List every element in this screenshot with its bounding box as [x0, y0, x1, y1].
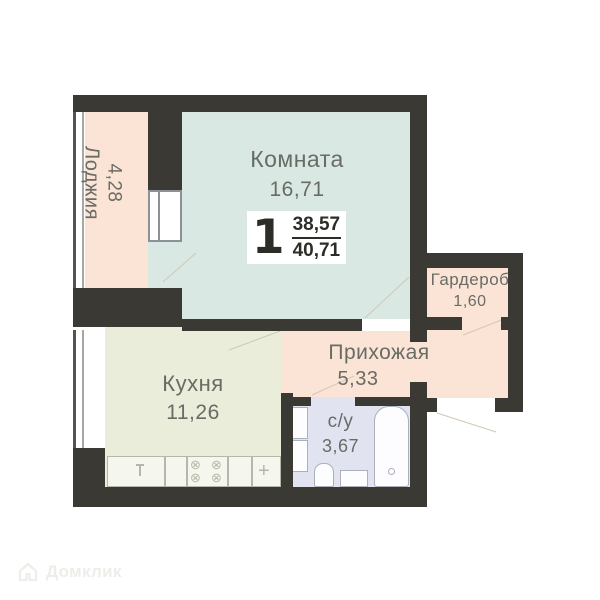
wall [73, 288, 182, 327]
room-area-value: 11,26 [118, 400, 268, 425]
counter-divider [251, 457, 253, 486]
room-area-hallway-value: 5,33 [300, 367, 416, 391]
kitchen-window [73, 330, 76, 448]
room-area-value: 1,60 [420, 292, 520, 311]
room-label-kitchen: Кухня 11,26 [118, 371, 268, 426]
room-area-value: 5,33 [300, 367, 416, 391]
wall [182, 319, 362, 331]
room-area-value: 16,71 [197, 177, 397, 202]
watermark-logo: Домклик [16, 560, 122, 584]
door-swing-line [365, 277, 409, 318]
counter-divider [227, 457, 229, 486]
room-area-value: 3,67 [293, 436, 388, 458]
living-area-value: 38,57 [292, 213, 342, 239]
house-icon [16, 560, 40, 584]
wall [281, 393, 293, 487]
kitchen-window-inner-line [82, 330, 84, 448]
counter-divider [164, 457, 166, 486]
watermark-text: Домклик [46, 562, 122, 582]
faucet-icon [136, 464, 144, 466]
balcony-window [148, 190, 182, 242]
sink-cross-icon: + [258, 460, 270, 483]
sink-icon [340, 470, 368, 487]
room-name: Комната [197, 146, 397, 174]
loggia-window [73, 110, 76, 288]
room-area-value: 4,28 [103, 164, 125, 203]
wall [355, 397, 410, 406]
room-label-wardrobe: Гардероб 1,60 [420, 270, 520, 312]
room-name: с/у [293, 411, 388, 434]
room-name: Кухня [118, 371, 268, 397]
wall [501, 317, 513, 330]
room-label-loggia: Лоджия 4,28 [79, 108, 125, 258]
door-swing-line [463, 319, 504, 335]
door-swing-line [229, 331, 280, 350]
room-name: Лоджия [80, 146, 103, 220]
wall [410, 253, 523, 268]
wall [73, 95, 427, 112]
room-label-hallway: Прихожая [300, 340, 458, 365]
burner-icon: ⊗ [209, 472, 224, 485]
room-label-living: Комната 16,71 [197, 146, 397, 202]
apartment-badge: 1 38,57 40,71 [247, 211, 346, 264]
floor-plan: ⊗ ⊗ ⊗ ⊗ + Лоджия 4,28 [0, 0, 600, 600]
wall [410, 398, 437, 412]
burner-icon: ⊗ [188, 472, 203, 485]
wall [495, 398, 523, 412]
bathtub-drain-icon [388, 468, 395, 475]
room-name: Гардероб [420, 270, 520, 290]
room-name: Прихожая [300, 340, 458, 365]
wall [73, 487, 427, 507]
wall [148, 112, 182, 190]
toilet-icon [314, 463, 334, 487]
total-area-value: 40,71 [293, 239, 341, 263]
door-swing-line [163, 253, 196, 282]
stove-icon: ⊗ ⊗ ⊗ ⊗ [188, 459, 224, 485]
room-label-bathroom: с/у 3,67 [293, 411, 388, 457]
wall [410, 317, 462, 330]
wall [293, 397, 311, 406]
rooms-count: 1 [252, 214, 285, 261]
area-fraction: 38,57 40,71 [292, 213, 342, 263]
balcony-window-divider [158, 192, 160, 240]
kitchen-window-gap [73, 330, 105, 448]
door-swing-line [437, 413, 496, 432]
